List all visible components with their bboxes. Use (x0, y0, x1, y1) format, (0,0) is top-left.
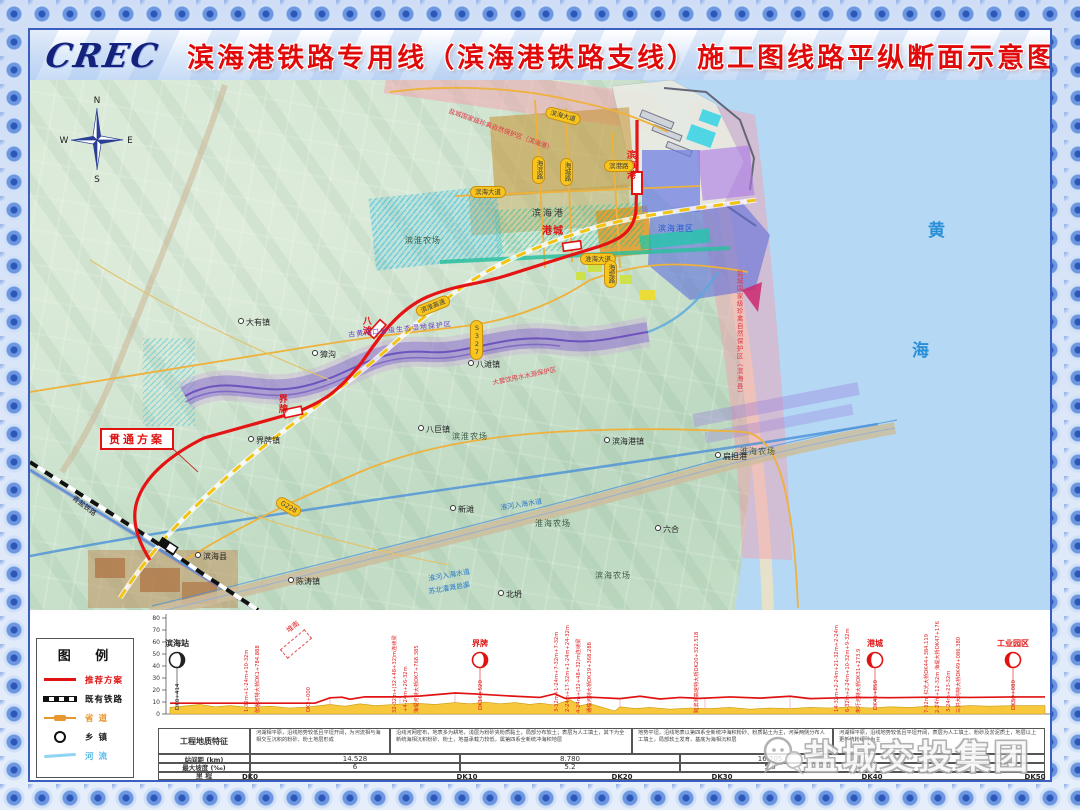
map-label: 大套饮用水水源保护区 (492, 366, 557, 386)
drawing-title: 滨海港铁路专用线（滨海港铁路支线）施工图线路平纵断面示意图 (187, 36, 1050, 75)
road-badge: G228 (274, 495, 304, 519)
bridge-annotation: 6-32m+2-24m+10-32m+9-32m (845, 628, 851, 712)
svg-text:界牌: 界牌 (472, 638, 488, 648)
table-cell: 沿线河网密布，地表多为耕地，浅层为粉砂夹粉质黏土，局部分布软土；表层为人工填土，… (390, 728, 632, 754)
map-label: 新滩 (450, 505, 474, 515)
road-badge: S327 (470, 320, 483, 360)
svg-text:70: 70 (152, 627, 160, 634)
bridge-annotation: 2-24m+12-32m 海堤大桥DK47+176 (934, 621, 941, 713)
map-label: 淮河入海水道 (500, 498, 543, 512)
road-badge: 滨淮高速 (414, 294, 452, 319)
map-label: 六合 (655, 525, 679, 535)
route-symbol (44, 678, 76, 681)
map-label: 滨海港区 (658, 225, 694, 234)
svg-text:80: 80 (152, 615, 160, 622)
map-labels-layer: 大有镇獐沟界牌镇八巨镇八滩镇陈涛镇滨海港镇扁担港新滩六合北坍滨海县滨淮农场滨淮农… (30, 80, 1050, 610)
map-label: 界牌 (276, 394, 286, 414)
legend-item-label: 乡 镇 (85, 731, 108, 743)
legend-symbol (43, 717, 77, 719)
legend-item-label: 既有铁路 (85, 693, 123, 705)
road-symbol (44, 717, 76, 719)
bridge-annotation: +4-24m+26-32m (403, 666, 409, 712)
plan-map: N S E W 大有镇獐沟界牌镇八巨镇八滩镇陈涛镇滨海港镇扁担港新滩六合北坍滨海… (30, 80, 1050, 610)
bridge-annotation: 三洪大沟特大桥DK49+086.380 (955, 637, 962, 713)
road-badge: 海堤路 (604, 260, 617, 288)
map-label: 獐沟 (312, 350, 336, 360)
legend-item: 既有铁路 (43, 689, 127, 708)
map-label: 滨淮农场 (405, 237, 441, 246)
svg-text:50: 50 (152, 651, 160, 658)
legend-item: 乡 镇 (43, 727, 127, 746)
legend-item: 河 流 (43, 746, 127, 765)
legend-items: 推荐方案既有铁路省 道乡 镇河 流 (43, 670, 127, 765)
map-label: 八巨镇 (418, 425, 450, 435)
bridge-annotation: 3-24m+23-32m (946, 671, 952, 712)
svg-text:DK16+520: DK16+520 (478, 680, 484, 710)
map-label: 盐城国家级珍禽自然保护区（滨海县） (735, 270, 742, 470)
svg-text:20: 20 (152, 687, 160, 694)
map-label: 北坍 (498, 590, 522, 600)
legend-item-label: 推荐方案 (85, 674, 123, 686)
svg-text:DK0+414: DK0+414 (175, 683, 181, 710)
map-label: 盐城国家级珍禽自然保护区（滨海港） (448, 108, 554, 153)
map-label: 滨海港镇 (604, 437, 644, 447)
mileage-mark: DK10 (457, 773, 478, 781)
bridge-annotation: 7-32m 红光大桥DK44+384.119 (923, 634, 930, 713)
map-label: 滨海县 (195, 552, 227, 562)
svg-text:滨海站: 滨海站 (165, 638, 189, 648)
table-cell: 5.2 (460, 763, 680, 772)
table-cell: 14.528 (250, 754, 460, 763)
table-row-label: 里 程 (158, 772, 250, 781)
legend-item: 省 道 (43, 708, 127, 727)
profile-section: 80706050403020100滨海站DK0+414界牌DK16+520港城D… (140, 610, 1078, 728)
svg-text:10: 10 (152, 699, 160, 706)
svg-text:40: 40 (152, 663, 160, 670)
legend-item-label: 河 流 (85, 750, 108, 762)
map-label: 界牌镇 (248, 436, 280, 446)
legend-symbol (43, 731, 77, 743)
road-badge: 滨海大道 (544, 106, 582, 127)
bridge-annotation: 通榆河特大桥DK19+368.288 (586, 642, 593, 713)
svg-text:DK41+850: DK41+850 (873, 680, 879, 710)
svg-text:0: 0 (156, 711, 160, 718)
road-badge: 滨海大道 (470, 186, 506, 198)
road-badge: 滨港路 (604, 160, 634, 172)
crec-logo: CREC (43, 36, 163, 75)
map-label: 海 (912, 342, 929, 361)
map-label: 滨淮农场 (452, 433, 488, 442)
drawing-sheet: CREC 滨海港铁路专用线（滨海港铁路支线）施工图线路平纵断面示意图 (28, 28, 1052, 782)
bridge-annotation: DK2+000 (306, 687, 312, 712)
bridge-annotation: 跨滨淮高速特大桥DK20+322.518 (693, 632, 700, 713)
bridge-annotation: 2-24m+17-32m+1-24m+24-32m (565, 625, 571, 712)
title-bar: CREC 滨海港铁路专用线（滨海港铁路支线）施工图线路平纵断面示意图 (30, 30, 1050, 80)
chat-bubbles-icon (760, 735, 804, 775)
river-symbol (44, 753, 76, 758)
page: { "title": { "logo": "CREC", "text": "滨海… (0, 0, 1080, 810)
table-cell: 8.780 (460, 754, 680, 763)
bridge-annotation: 4-24m+(32+48+32)m连续梁 (575, 639, 582, 713)
bridge-annotation: 14-32m+2-24m+21-32m+2-24m (834, 625, 840, 712)
map-label: 陈涛镇 (288, 577, 320, 587)
watermark-text: 盐城交投集团 (804, 730, 1032, 779)
mileage-mark: DK20 (612, 773, 633, 781)
road-badge: 海滨路 (532, 156, 545, 184)
legend: 图 例 推荐方案既有铁路省 道乡 镇河 流 (36, 638, 134, 778)
map-label: 滨海农场 (595, 572, 631, 581)
table-cell: 6 (250, 763, 460, 772)
bridge-annotation: 海堤河特大桥DK7+768.385 (413, 645, 420, 713)
legend-item: 推荐方案 (43, 670, 127, 689)
legend-symbol (43, 754, 77, 757)
legend-item-label: 省 道 (85, 712, 108, 724)
bridge-annotation: 张家河特大桥DK1+784.888 (254, 645, 261, 713)
svg-text:港城: 港城 (867, 638, 883, 648)
legend-title: 图 例 (49, 645, 127, 664)
map-label: 大有镇 (238, 318, 270, 328)
bridge-annotation: 朱圩河特大桥DK31+273.9 (855, 649, 862, 713)
through-plan-box: 贯通方案 (100, 428, 174, 450)
watermark: 盐城交投集团 (760, 730, 1032, 779)
mileage-mark: DK30 (712, 773, 733, 781)
svg-text:工业园区: 工业园区 (997, 638, 1029, 648)
map-label: 滨海港 (532, 210, 565, 220)
table-row-label: 工程地质特征 (158, 728, 250, 754)
rail-symbol (43, 696, 77, 702)
map-label: 黄 (928, 222, 945, 241)
table-cell: 河湖相平原，沿线地势较低且平坦开阔，为河流相与海相交互沉积的粉砂、粉土地层形成 (250, 728, 390, 754)
svg-text:30: 30 (152, 675, 160, 682)
road-badge: 海城路 (560, 158, 573, 186)
map-label: 青盐铁路 (70, 495, 97, 518)
bridge-annotation: 32-32m+(32+48+32)m连续梁 (391, 635, 398, 713)
map-label: 八滩镇 (468, 360, 500, 370)
map-label: 苏北灌溉总渠 (428, 582, 471, 597)
map-label: 港城 (542, 226, 564, 237)
bridge-annotation: 3-32m+1-24m+7-32m+7-32m (554, 632, 560, 712)
svg-text:60: 60 (152, 639, 160, 646)
map-label: 淮海农场 (740, 448, 776, 457)
map-label: 淮海农场 (535, 520, 571, 529)
mileage-mark: DK0 (242, 773, 258, 781)
bridge-annotation: 1-32m+1-24m+10-32m (244, 650, 250, 712)
town-symbol (54, 731, 66, 743)
svg-text:DK50+080: DK50+080 (1011, 680, 1017, 710)
legend-symbol (43, 678, 77, 681)
legend-symbol (43, 696, 77, 702)
